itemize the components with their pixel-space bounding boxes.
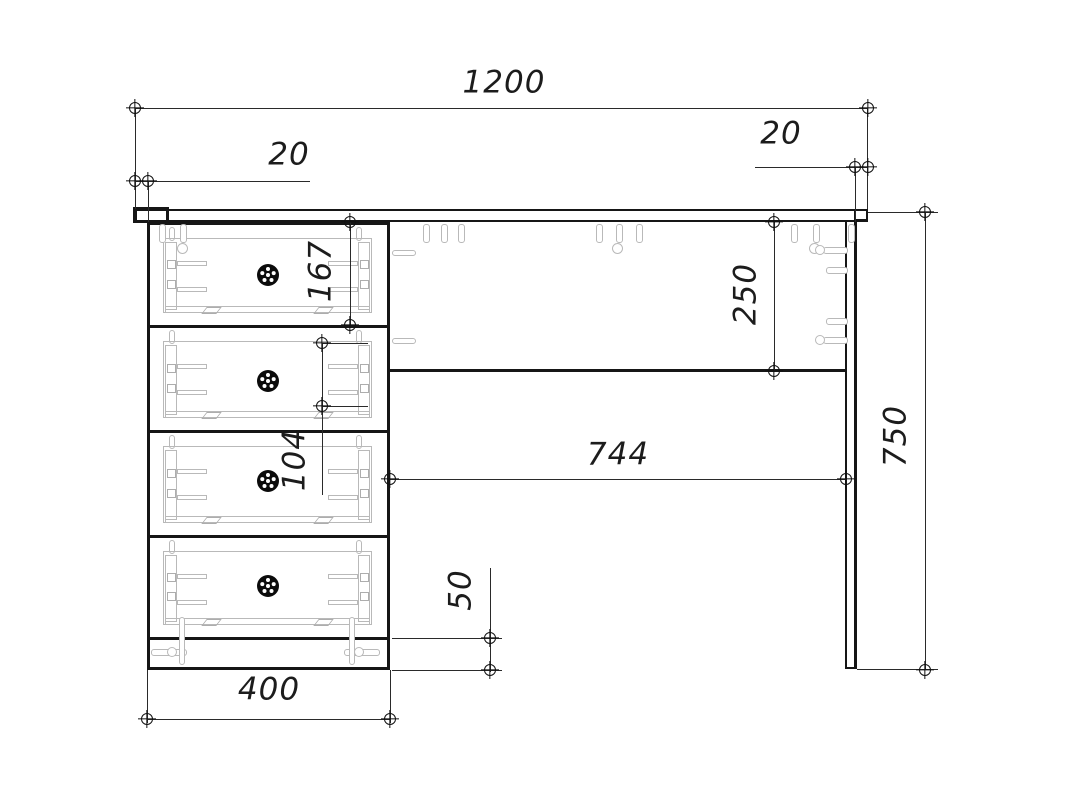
drawer-slide-left: [165, 242, 177, 310]
dim-point-marker: [919, 206, 931, 218]
dowel-pin: [159, 224, 166, 243]
dim-point-marker: [484, 664, 496, 676]
drawer-slide-right: [358, 555, 370, 622]
dim-point-marker: [129, 102, 141, 114]
slide-rail: [328, 495, 358, 500]
tabletop: [135, 209, 868, 222]
dowel-pin: [826, 267, 848, 274]
cam-lock: [612, 243, 623, 254]
screw-head: [815, 335, 825, 345]
dim-kneehole-width: 744: [587, 440, 649, 471]
dimension-line: [774, 222, 775, 371]
dowel-pin: [169, 227, 175, 241]
dowel-pin: [179, 617, 185, 665]
dim-point-marker: [141, 713, 153, 725]
dowel-pin: [616, 224, 623, 243]
screw-head: [167, 647, 177, 657]
dimension-line: [135, 108, 868, 109]
dowel-pin: [636, 224, 643, 243]
side-leg-panel: [845, 222, 857, 669]
tabletop-left-cap: [133, 207, 169, 223]
dim-point-marker: [316, 337, 328, 349]
slide-rail: [328, 469, 358, 474]
dim-left-overhang: 20: [268, 140, 309, 171]
dim-point-marker: [316, 400, 328, 412]
dowel-pin: [169, 435, 175, 449]
confirmat-screw: [823, 247, 848, 254]
dowel-pin: [356, 435, 362, 449]
dimension-line: [350, 222, 351, 325]
drawer-slide-left: [165, 345, 177, 415]
dowel-pin: [180, 224, 187, 243]
dowel-pin: [458, 224, 465, 243]
slide-rail: [392, 338, 416, 344]
dowel-pin: [441, 224, 448, 243]
tabletop-right-cap: [854, 209, 868, 221]
dim-point-marker: [862, 102, 874, 114]
drawer-knob[interactable]: [257, 264, 279, 286]
dim-point-marker: [768, 365, 780, 377]
dowel-pin: [791, 224, 798, 243]
dim-point-marker: [484, 632, 496, 644]
dimension-line: [135, 181, 310, 182]
dimension-line: [322, 343, 323, 495]
dowel-pin: [169, 540, 175, 554]
slide-rail: [328, 390, 358, 395]
dim-point-marker: [142, 175, 154, 187]
dowel-pin: [349, 617, 355, 665]
dim-pedestal-width: 400: [238, 675, 300, 706]
dim-point-marker: [862, 161, 874, 173]
dimension-line: [490, 568, 491, 672]
slide-rail: [328, 574, 358, 579]
dim-drawer-front-height: 167: [306, 240, 337, 302]
slide-rail: [177, 364, 207, 369]
slide-rail: [177, 261, 207, 266]
dowel-pin: [356, 227, 362, 241]
drawer-knob[interactable]: [257, 575, 279, 597]
technical-drawing-canvas: 1200 20 20 167 104 250 744 750 50 4: [0, 0, 1067, 800]
slide-rail: [328, 600, 358, 605]
drawer-bottom-rail: [165, 516, 370, 523]
drawer-bottom-rail: [165, 411, 370, 418]
dim-point-marker: [384, 473, 396, 485]
dimension-line: [925, 212, 926, 670]
drawer-slide-right: [358, 242, 370, 310]
dowel-pin: [169, 330, 175, 344]
dimension-line: [390, 479, 846, 480]
screw-head: [815, 245, 825, 255]
drawer-slide-right: [358, 450, 370, 520]
drawer-slide-right: [358, 345, 370, 415]
slide-rail: [177, 574, 207, 579]
slide-rail: [328, 364, 358, 369]
slide-rail: [177, 469, 207, 474]
confirmat-screw: [823, 337, 848, 344]
dim-right-overhang: 20: [760, 119, 801, 150]
slide-rail: [177, 495, 207, 500]
dim-drawer-pitch: 104: [280, 429, 311, 491]
slide-rail: [177, 600, 207, 605]
dim-total-width: 1200: [463, 68, 546, 99]
slide-rail: [177, 390, 207, 395]
dowel-pin: [848, 224, 855, 243]
dim-point-marker: [840, 473, 852, 485]
cam-lock: [177, 243, 188, 254]
dim-point-marker: [344, 319, 356, 331]
drawer-slide-left: [165, 450, 177, 520]
dowel-pin: [356, 540, 362, 554]
dowel-pin: [826, 318, 848, 325]
dimension-line: [147, 719, 390, 720]
screw-head: [354, 647, 364, 657]
dim-plinth-height: 50: [446, 569, 477, 610]
drawer-bottom-rail: [165, 618, 370, 625]
dim-point-marker: [384, 713, 396, 725]
slide-rail: [392, 250, 416, 256]
drawer-knob[interactable]: [257, 370, 279, 392]
dim-point-marker: [344, 216, 356, 228]
drawer-bottom-rail: [165, 306, 370, 313]
dim-apron-height: 250: [731, 263, 762, 325]
dim-overall-height: 750: [881, 405, 912, 467]
dim-point-marker: [768, 216, 780, 228]
extension-line: [135, 108, 136, 209]
dowel-pin: [423, 224, 430, 243]
drawer-slide-left: [165, 555, 177, 622]
dowel-pin: [356, 330, 362, 344]
drawer-3: [147, 433, 388, 535]
dowel-pin: [813, 224, 820, 243]
slide-rail: [177, 287, 207, 292]
dim-point-marker: [919, 664, 931, 676]
dowel-pin: [596, 224, 603, 243]
